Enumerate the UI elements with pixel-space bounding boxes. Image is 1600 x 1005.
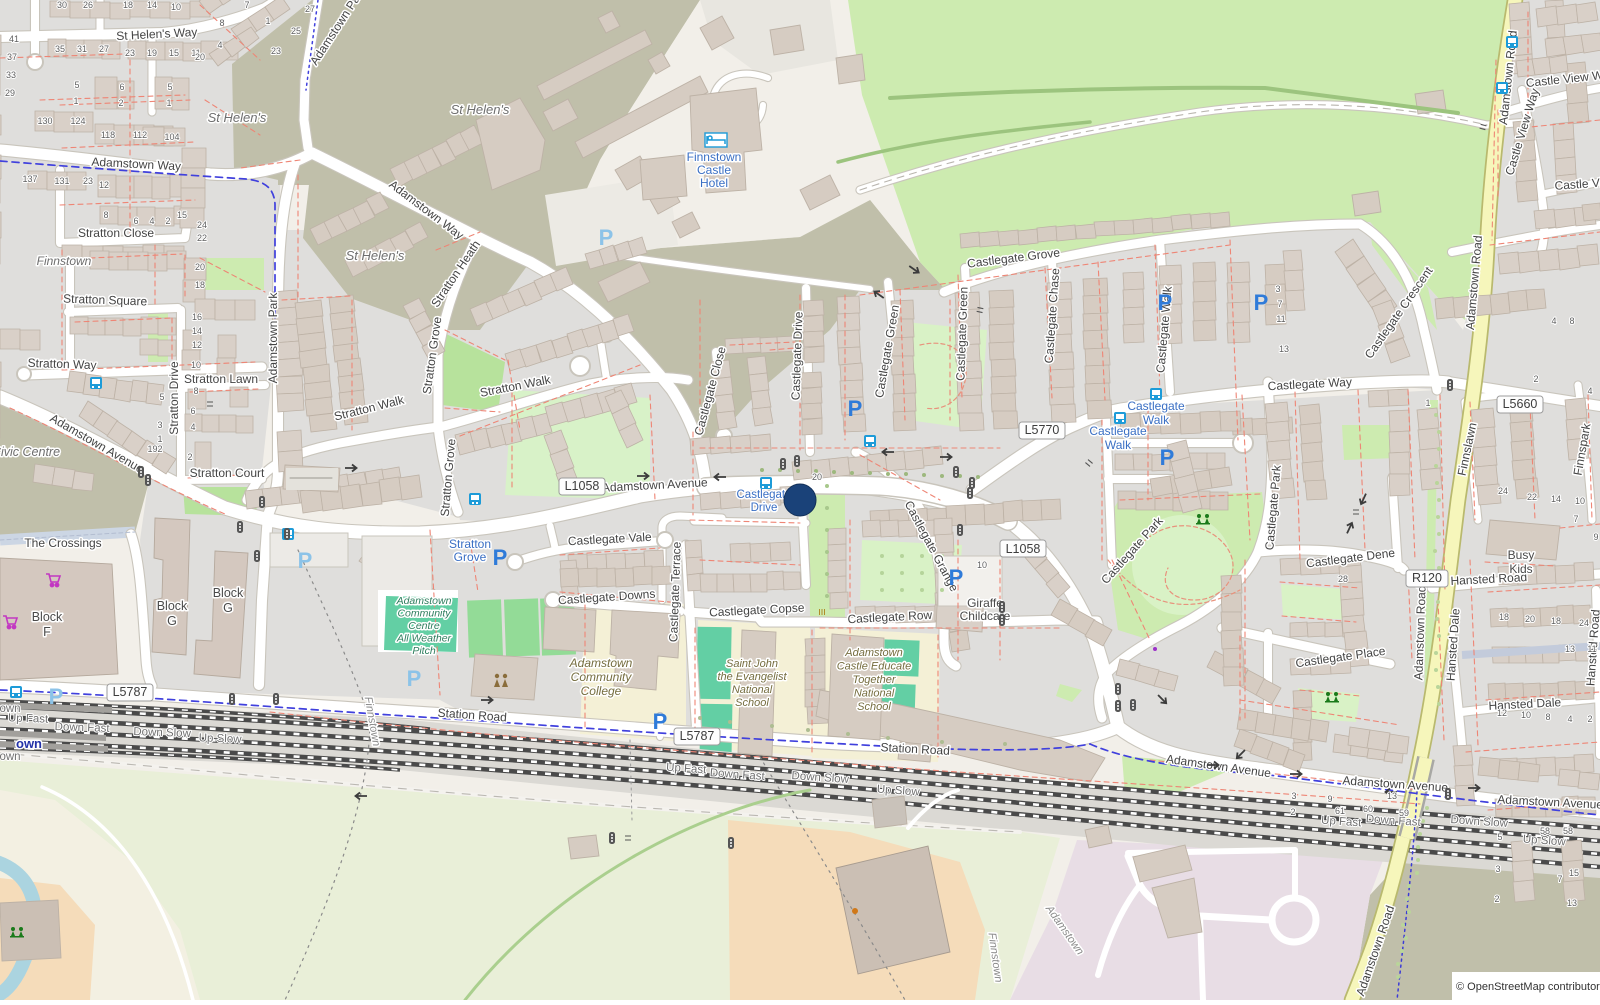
svg-text:2: 2	[118, 98, 123, 108]
svg-text:61: 61	[1335, 806, 1345, 816]
svg-text:13: 13	[1279, 344, 1289, 354]
svg-text:Kids: Kids	[1509, 562, 1532, 576]
svg-text:National: National	[732, 684, 773, 696]
svg-text:13: 13	[1567, 898, 1577, 908]
svg-text:Castle Vie: Castle Vie	[1554, 175, 1600, 193]
svg-text:P: P	[493, 545, 508, 570]
svg-text:P: P	[407, 666, 422, 691]
svg-text:The Crossings: The Crossings	[24, 536, 101, 550]
svg-text:192: 192	[147, 444, 162, 454]
svg-text:Stratton Close: Stratton Close	[78, 226, 154, 240]
svg-text:G: G	[223, 601, 233, 615]
svg-text:Together: Together	[852, 674, 896, 686]
svg-text:G: G	[167, 614, 177, 628]
svg-text:All Weather: All Weather	[396, 633, 452, 645]
svg-text:1: 1	[166, 98, 171, 108]
svg-text:L5787: L5787	[113, 685, 148, 699]
svg-text:9: 9	[1593, 532, 1598, 542]
svg-text:P: P	[599, 225, 614, 250]
svg-text:L1058: L1058	[565, 479, 600, 493]
svg-text:College: College	[581, 684, 622, 698]
svg-text:7: 7	[1277, 299, 1282, 309]
svg-text:3: 3	[157, 420, 162, 430]
svg-text:St Helen's: St Helen's	[208, 110, 267, 125]
svg-text:Castlegate: Castlegate	[737, 489, 792, 501]
svg-text:2: 2	[187, 452, 192, 462]
svg-text:own: own	[16, 736, 42, 751]
svg-text:3: 3	[1495, 864, 1500, 874]
svg-text:P: P	[1158, 290, 1173, 315]
svg-text:5: 5	[74, 80, 79, 90]
svg-text:Community: Community	[571, 670, 633, 684]
svg-text:4: 4	[1551, 316, 1556, 326]
svg-text:9: 9	[1327, 794, 1332, 804]
svg-text:20: 20	[812, 472, 822, 482]
svg-text:Up Slow: Up Slow	[198, 732, 242, 746]
svg-text:118: 118	[101, 130, 115, 140]
svg-text:Busy: Busy	[1508, 548, 1535, 562]
svg-text:R120: R120	[1412, 571, 1442, 585]
svg-text:6: 6	[190, 406, 195, 416]
svg-text:35: 35	[55, 44, 65, 54]
svg-text:P: P	[1254, 290, 1269, 315]
svg-text:33: 33	[6, 70, 16, 80]
svg-text:Adamstown: Adamstown	[569, 656, 633, 670]
svg-text:22: 22	[1527, 492, 1537, 502]
svg-text:10: 10	[977, 560, 987, 570]
svg-text:School: School	[735, 697, 769, 709]
svg-text:Stratton Way: Stratton Way	[27, 356, 96, 372]
svg-text:25: 25	[291, 26, 301, 36]
svg-text:L5770: L5770	[1025, 423, 1060, 437]
svg-text:124: 124	[70, 116, 85, 126]
svg-text:3: 3	[1291, 791, 1296, 801]
svg-text:the Evangelist: the Evangelist	[717, 671, 787, 683]
svg-text:4: 4	[1587, 386, 1592, 396]
svg-text:© OpenStreetMap contributors: © OpenStreetMap contributors	[1456, 981, 1600, 993]
svg-text:18: 18	[1499, 612, 1509, 622]
svg-text:24: 24	[1498, 486, 1508, 496]
svg-text:10: 10	[191, 360, 201, 370]
svg-text:16: 16	[192, 312, 202, 322]
svg-text:20: 20	[1525, 614, 1535, 624]
svg-text:10: 10	[1521, 710, 1531, 720]
svg-text:National: National	[854, 688, 895, 700]
svg-text:2: 2	[1494, 894, 1499, 904]
svg-text:Walk: Walk	[1105, 438, 1132, 452]
svg-text:15: 15	[177, 210, 187, 220]
svg-text:L5787: L5787	[680, 729, 715, 743]
svg-text:own: own	[0, 703, 21, 715]
svg-text:Castle Educate: Castle Educate	[837, 661, 912, 673]
svg-text:12: 12	[1497, 708, 1507, 718]
svg-text:14: 14	[1551, 494, 1561, 504]
svg-text:Community: Community	[397, 608, 451, 620]
svg-text:112: 112	[133, 130, 147, 140]
svg-text:P: P	[49, 684, 64, 709]
svg-text:P: P	[1160, 445, 1175, 470]
svg-text:18: 18	[1551, 616, 1561, 626]
svg-text:P: P	[653, 709, 668, 734]
svg-text:P: P	[298, 548, 313, 573]
svg-text:2: 2	[1533, 374, 1538, 384]
svg-text:Pitch: Pitch	[412, 645, 436, 657]
svg-text:4: 4	[217, 40, 222, 50]
svg-text:2: 2	[1290, 807, 1295, 817]
svg-text:4: 4	[1567, 714, 1572, 724]
svg-text:L5660: L5660	[1503, 397, 1538, 411]
svg-text:1: 1	[1425, 398, 1430, 408]
svg-text:Saint John: Saint John	[726, 658, 778, 670]
svg-text:13: 13	[1565, 644, 1575, 654]
svg-text:28: 28	[1338, 574, 1348, 584]
svg-text:41: 41	[9, 34, 19, 44]
svg-text:L1058: L1058	[1006, 542, 1041, 556]
svg-text:own: own	[0, 751, 21, 763]
svg-text:Castlegate: Castlegate	[1089, 424, 1147, 438]
svg-text:1: 1	[73, 96, 78, 106]
svg-text:4: 4	[190, 422, 195, 432]
svg-text:59: 59	[1399, 808, 1409, 818]
svg-text:23: 23	[271, 46, 281, 56]
svg-text:130: 130	[37, 116, 52, 126]
svg-text:Castle: Castle	[697, 163, 731, 177]
svg-text:37: 37	[7, 52, 17, 62]
svg-text:14: 14	[147, 0, 157, 10]
svg-text:Stratton Drive: Stratton Drive	[167, 361, 181, 435]
svg-text:20: 20	[195, 262, 205, 272]
svg-text:11: 11	[1276, 314, 1285, 324]
svg-text:Grove: Grove	[454, 550, 487, 564]
svg-text:Adamstown: Adamstown	[844, 647, 902, 659]
svg-text:F: F	[43, 625, 51, 639]
svg-text:27: 27	[99, 44, 109, 54]
svg-text:1: 1	[265, 16, 270, 26]
svg-text:Block: Block	[32, 610, 63, 624]
svg-text:Drive: Drive	[751, 502, 778, 514]
svg-text:11: 11	[1587, 644, 1596, 654]
svg-text:5: 5	[1497, 832, 1502, 842]
svg-text:19: 19	[147, 48, 157, 58]
svg-text:P: P	[949, 565, 964, 590]
svg-text:Finnstown: Finnstown	[687, 150, 742, 164]
svg-text:Adamstown: Adamstown	[396, 595, 452, 607]
svg-text:Civic Centre: Civic Centre	[0, 445, 60, 459]
svg-text:School: School	[857, 701, 891, 713]
svg-text:60: 60	[1363, 804, 1373, 814]
svg-text:1: 1	[157, 434, 162, 444]
svg-text:Stratton Court: Stratton Court	[190, 466, 265, 480]
svg-text:8: 8	[219, 18, 224, 28]
svg-text:Walk: Walk	[1143, 413, 1170, 427]
svg-text:Block: Block	[157, 599, 188, 613]
svg-text:10: 10	[171, 2, 181, 12]
svg-text:Stratton Lawn: Stratton Lawn	[184, 372, 258, 386]
svg-text:23: 23	[83, 176, 93, 186]
svg-text:104: 104	[164, 132, 179, 142]
svg-text:24: 24	[1579, 618, 1589, 628]
svg-text:23: 23	[125, 48, 135, 58]
svg-text:Down Slow: Down Slow	[133, 726, 192, 740]
svg-text:Castlegate: Castlegate	[1127, 399, 1185, 413]
svg-text:22: 22	[197, 233, 207, 243]
svg-text:Stratton: Stratton	[449, 537, 491, 551]
svg-text:137: 137	[22, 174, 37, 184]
svg-text:St Helen's: St Helen's	[451, 102, 510, 117]
svg-text:8: 8	[193, 386, 198, 396]
svg-text:St Helen's: St Helen's	[346, 248, 405, 263]
svg-text:8: 8	[1569, 316, 1574, 326]
svg-text:Stratton Square: Stratton Square	[63, 292, 148, 309]
svg-text:8: 8	[103, 210, 108, 220]
svg-text:Centre: Centre	[408, 620, 440, 632]
svg-text:5: 5	[167, 82, 172, 92]
svg-text:Down Fast: Down Fast	[54, 721, 110, 735]
svg-text:2: 2	[1587, 714, 1592, 724]
svg-text:8: 8	[1545, 712, 1550, 722]
svg-text:Finnstown: Finnstown	[37, 254, 92, 268]
svg-text:15: 15	[1569, 868, 1579, 878]
svg-text:12: 12	[99, 180, 109, 190]
svg-text:14: 14	[192, 326, 202, 336]
svg-text:18: 18	[195, 280, 205, 290]
svg-text:29: 29	[5, 88, 15, 98]
svg-text:Hotel: Hotel	[700, 176, 728, 190]
svg-text:6: 6	[133, 216, 138, 226]
svg-text:27: 27	[305, 4, 315, 14]
svg-text:7: 7	[1573, 514, 1578, 524]
svg-text:26: 26	[83, 0, 93, 10]
svg-text:24: 24	[197, 220, 207, 230]
svg-text:Block: Block	[213, 586, 244, 600]
svg-text:Adamstown Park: Adamstown Park	[266, 292, 280, 384]
svg-text:7: 7	[244, 0, 249, 10]
svg-text:Giraffe: Giraffe	[967, 596, 1003, 610]
svg-text:7: 7	[1557, 874, 1562, 884]
svg-text:20: 20	[195, 52, 205, 62]
svg-text:13: 13	[1387, 791, 1397, 801]
svg-text:15: 15	[169, 48, 179, 58]
svg-text:18: 18	[123, 0, 133, 10]
svg-text:10: 10	[1575, 496, 1585, 506]
svg-text:30: 30	[57, 0, 67, 10]
svg-text:58: 58	[1563, 826, 1573, 836]
svg-text:131: 131	[54, 176, 69, 186]
svg-text:12: 12	[192, 340, 202, 350]
svg-text:4: 4	[149, 216, 154, 226]
svg-text:31: 31	[77, 44, 87, 54]
svg-text:P: P	[848, 396, 863, 421]
svg-text:58: 58	[1540, 826, 1550, 836]
svg-text:3: 3	[1275, 284, 1280, 294]
svg-text:5: 5	[159, 392, 164, 402]
svg-text:2: 2	[165, 216, 170, 226]
svg-text:6: 6	[119, 82, 124, 92]
